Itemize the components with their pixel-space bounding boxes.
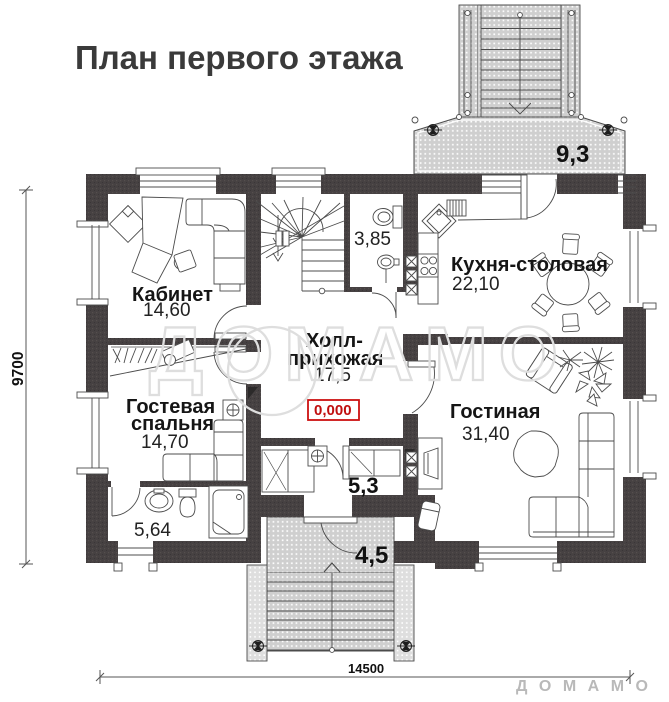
svg-text:0,000: 0,000 [314,402,352,419]
svg-text:Кухня-столовая: Кухня-столовая [451,254,608,276]
svg-text:4,5: 4,5 [355,542,388,569]
svg-text:31,40: 31,40 [462,424,510,445]
svg-text:5,3: 5,3 [348,473,379,498]
svg-text:9700: 9700 [10,352,27,386]
svg-text:5,64: 5,64 [134,520,171,541]
svg-text:3,85: 3,85 [354,229,391,250]
svg-text:14,70: 14,70 [141,432,189,453]
svg-text:ДОМАМО: ДОМАМО [149,312,569,397]
svg-text:9,3: 9,3 [556,141,589,168]
svg-text:ДОМАМО: ДОМАМО [516,678,660,695]
svg-text:14500: 14500 [348,661,384,676]
svg-text:Гостиная: Гостиная [450,401,540,423]
svg-text:План первого этажа: План первого этажа [75,39,403,76]
svg-text:22,10: 22,10 [452,274,500,295]
